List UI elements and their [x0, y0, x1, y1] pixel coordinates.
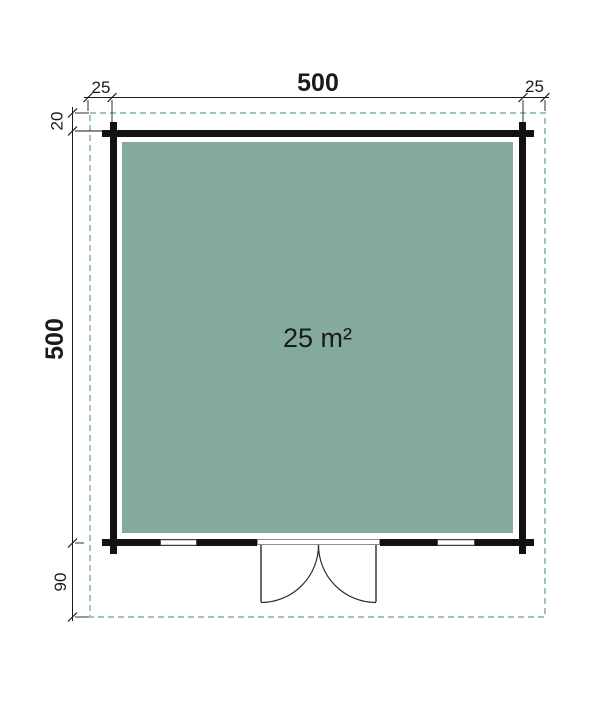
dim-label-top-right-offset: 25 [525, 77, 544, 96]
floor-plan-canvas: 25 500 25 20 500 90 25 m² [0, 0, 600, 700]
window-left [161, 540, 197, 546]
door-swing-arc-left [261, 545, 319, 603]
door-frame-lintel [258, 540, 380, 545]
dim-label-left-bottom-offset: 90 [51, 573, 70, 592]
door-swing-arc-right [319, 545, 377, 603]
window-right [438, 540, 475, 546]
dimension-top: 25 500 25 [84, 69, 550, 127]
dim-label-top-width: 500 [297, 69, 339, 97]
floor-area-label: 25 m² [283, 323, 352, 353]
dim-label-left-top-offset: 20 [48, 112, 67, 131]
dimension-left: 20 500 90 [41, 107, 108, 622]
dim-label-left-height: 500 [41, 318, 69, 360]
wall-right-beam [519, 122, 526, 554]
double-door [257, 539, 380, 603]
wall-top-beam [102, 130, 534, 137]
dim-label-top-left-offset: 25 [92, 78, 111, 97]
floor-plan: 25 500 25 20 500 90 25 m² [0, 0, 600, 700]
wall-left-beam [110, 122, 117, 554]
